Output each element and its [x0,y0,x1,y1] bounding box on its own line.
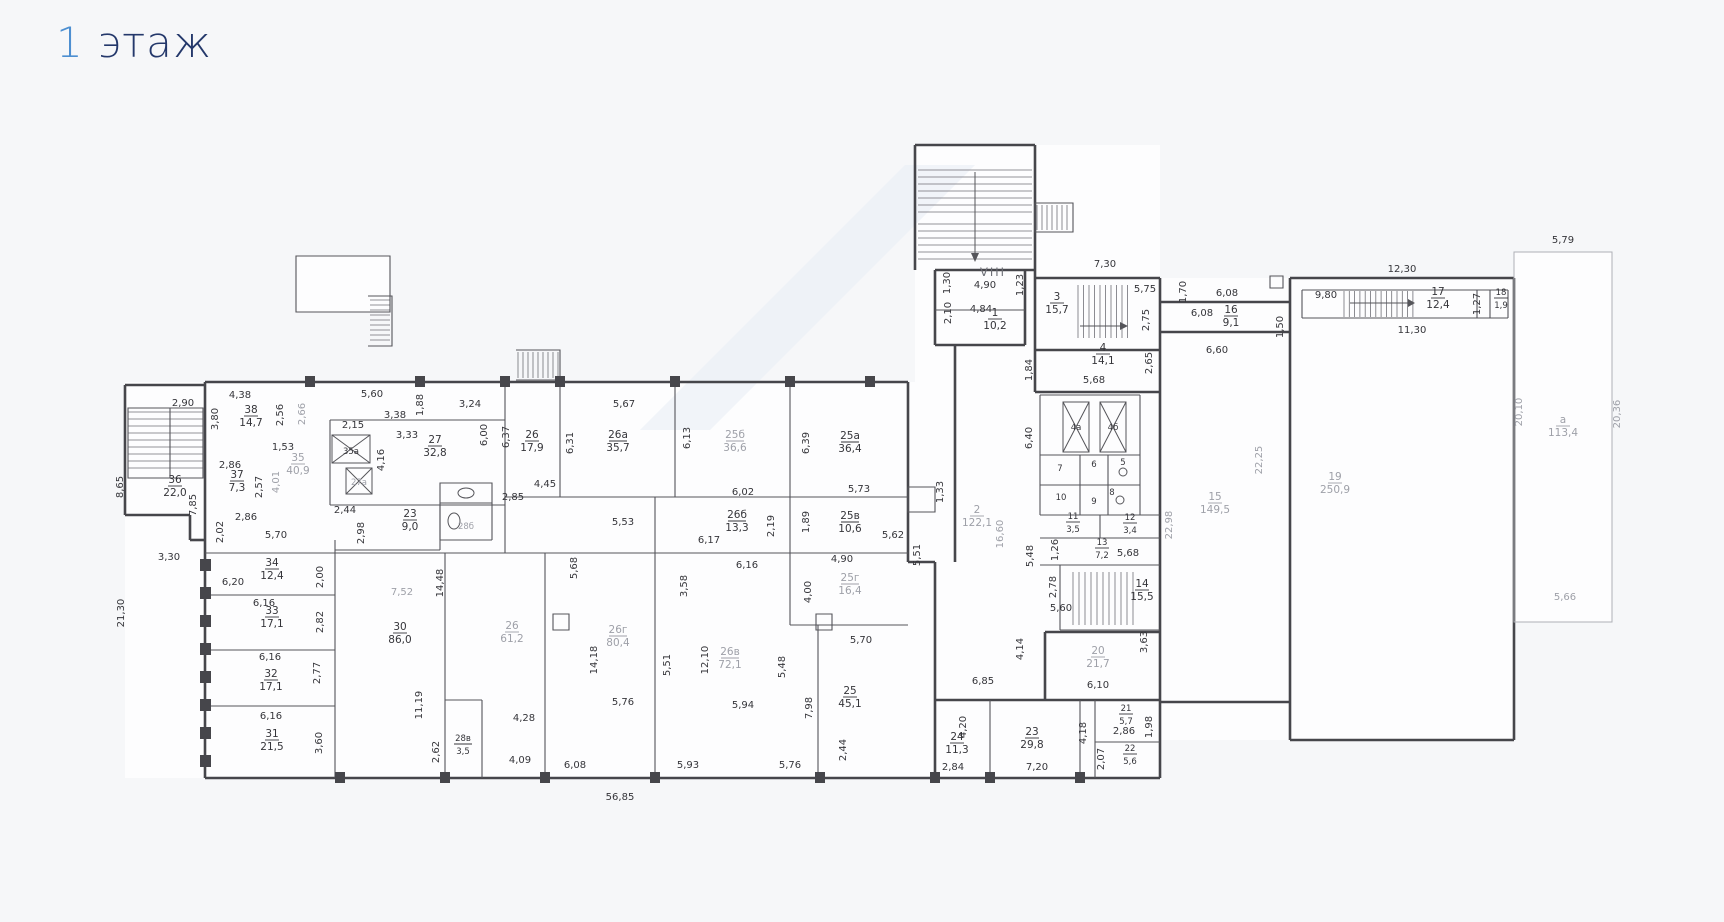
dimension-label: 14,18 [589,646,600,675]
dimension-label: 2,15 [342,420,364,431]
room-number: 18 [1496,288,1507,298]
dimension-label: 6,10 [1087,680,1109,691]
room-label: 25в10,6 [838,510,862,535]
dimension-label: 22,25 [1254,446,1265,475]
room-number: 16 [1224,304,1238,316]
room-number: 17 [1431,286,1444,298]
room-area: 113,4 [1548,427,1578,439]
dimension-label: 2,02 [215,521,226,543]
room-number: 37 [230,469,243,481]
dimension-label: 5,66 [1554,592,1576,603]
room-label: 26б13,3 [725,509,748,534]
dimension-label: 4,18 [1078,722,1089,744]
room-label: 4б [1108,423,1119,433]
dimension-label: 12,10 [700,646,711,675]
dimension-label: 12,30 [1388,264,1417,275]
dimension-label: 1,98 [1144,716,1155,738]
dimension-label: 5,79 [1552,235,1574,246]
dimension-label: 5,51 [912,544,923,566]
room-area: 5,7 [1119,717,1133,727]
room-label: 25б36,6 [723,429,747,454]
dimension-label: 5,68 [569,557,580,579]
dimension-label: 8,65 [115,476,126,498]
room-area: 21,5 [260,741,283,753]
dimension-label: 1,50 [1275,316,1286,338]
dimension-label: 6,08 [1191,308,1213,319]
dimension-label: 5,93 [677,760,699,771]
room-area: 250,9 [1320,484,1350,496]
dimension-label: VIII [980,265,1006,279]
dimension-label: 2,84 [942,762,964,773]
dimension-label: 6,13 [682,427,693,449]
dimension-label: 2,77 [312,662,323,684]
room-label: 4а [1071,423,1082,433]
dimension-label: 5,75 [1134,284,1156,295]
room-number: 4б [1108,423,1119,433]
dimension-label: 1,88 [415,394,426,416]
dimension-label: 6,16 [260,711,282,722]
dimension-label: 5,62 [882,530,904,541]
dimension-label: 3,58 [679,575,690,597]
dimension-label: 11,19 [414,691,425,720]
room-number: 21 [1121,704,1132,714]
dimension-label: 1,84 [1024,359,1035,381]
room-label: 377,3 [229,469,246,494]
dimension-label: 7,52 [391,587,413,598]
dimension-label: 2,07 [1096,748,1107,770]
room-area: 45,1 [838,698,861,710]
room-area: 32,8 [423,447,446,459]
room-number: 38 [244,404,257,416]
room-number: 31 [265,728,278,740]
dimension-label: 5,68 [1083,375,1105,386]
room-number: 9 [1091,497,1096,507]
room-number: 14 [1135,578,1149,590]
room-label: 26а35,7 [606,429,629,454]
room-area: 12,4 [1426,299,1450,311]
dimension-label: 6,39 [801,432,812,454]
room-number: 11 [1068,512,1079,522]
room-number: 25г [841,572,860,584]
dimension-label: 2,57 [254,476,265,498]
dimension-label: 6,08 [564,760,586,771]
room-label: 35а [343,447,359,457]
room-number: 3 [1054,291,1061,303]
dimension-label: 4,14 [1015,638,1026,660]
room-area: 15,7 [1045,304,1068,316]
room-label: 7 [1057,464,1062,474]
dimension-label: 6,16 [736,560,758,571]
room-number: 28б [458,522,474,532]
room-number: 10 [1056,493,1067,503]
room-area: 36,6 [723,442,747,454]
room-label: 5 [1120,458,1125,468]
room-label: 8 [1109,488,1114,498]
dimension-label: 1,89 [801,511,812,533]
room-label: 26в72,1 [718,646,741,671]
room-number: 12 [1125,513,1136,523]
dimension-label: 3,33 [396,430,418,441]
room-label: 28б [458,522,474,532]
dimension-label: 5,60 [361,389,383,400]
room-number: 2 [974,504,981,516]
room-number: 24 [950,731,964,743]
dimension-label: 4,16 [376,449,387,471]
room-area: 10,6 [838,523,862,535]
dimension-label: 6,00 [479,424,490,446]
dimension-label: 2,86 [1113,726,1135,737]
dimension-label: 6,40 [1024,427,1035,449]
dimension-label: 4,01 [271,471,282,493]
dimension-label: 2,62 [431,741,442,763]
room-number: 26а [608,429,628,441]
room-area: 11,3 [945,744,968,756]
dimension-label: 4,09 [509,755,531,766]
dimension-label: 11,30 [1398,325,1427,336]
room-number: 30 [393,621,406,633]
room-number: 33 [265,605,278,617]
room-area: 29,8 [1020,739,1043,751]
dimension-label: 3,38 [384,410,406,421]
dimension-label: 2,86 [235,512,257,523]
dimension-label: 14,48 [435,569,446,598]
page: 1 этаж 2,904,383,802,562,665,603,381,883… [0,0,1724,922]
dimension-label: 4,00 [803,581,814,603]
dimension-label: 2,82 [315,611,326,633]
dimension-label: 2,66 [297,403,308,425]
dimension-label: 2,44 [334,505,356,516]
dimension-label: 2,44 [838,739,849,761]
dimension-label: 2,00 [315,566,326,588]
dimension-label: 4,90 [974,280,996,291]
dimension-label: 7,98 [804,697,815,719]
room-number: 19 [1328,471,1341,483]
room-number: 26б [727,509,747,521]
room-area: 86,0 [388,634,411,646]
dimension-label: 56,85 [606,792,635,803]
room-area: 17,9 [520,442,543,454]
dimension-label: 6,02 [732,487,754,498]
room-number: 32 [264,668,277,680]
room-number: 4а [1071,423,1082,433]
room-number: 26г [609,624,628,636]
dimension-label: 4,28 [513,713,535,724]
dimension-label: 5,76 [612,697,634,708]
dimension-label: 5,48 [777,656,788,678]
dimension-label: 2,10 [943,302,954,324]
room-area: 9,0 [402,521,419,533]
dimension-label: 3,63 [1139,631,1150,653]
room-number: 5 [1120,458,1125,468]
room-number: 27 [428,434,441,446]
dimension-label: 20,36 [1612,400,1623,429]
room-number: 25 [843,685,856,697]
room-area: 36,4 [838,443,862,455]
room-area: 72,1 [718,659,741,671]
room-label: 25а36,4 [838,430,862,455]
dimension-label: 4,84 [970,304,992,315]
room-number: 26в [720,646,740,658]
room-area: 14,7 [239,417,262,429]
dimension-label: 3,24 [459,399,481,410]
dimension-label: 6,37 [501,426,512,448]
room-number: 26 [505,620,519,632]
room-number: 23 [403,508,416,520]
dimension-label: 16,60 [995,520,1006,549]
room-label: 25г16,4 [838,572,862,597]
room-label: 10 [1056,493,1067,503]
room-label: 9 [1091,497,1096,507]
dimension-label: 4,90 [831,554,853,565]
room-area: 15,5 [1130,591,1153,603]
room-label: 239,0 [402,508,419,533]
dimension-label: 2,56 [275,404,286,426]
dimension-label: 4,38 [229,390,251,401]
room-number: 7 [1057,464,1062,474]
dimension-label: 1,26 [1050,539,1061,561]
room-number: 13 [1097,538,1108,548]
dimension-label: 3,60 [314,732,325,754]
room-area: 22,0 [163,487,186,499]
dimension-label: 1,23 [1015,274,1026,296]
room-area: 5,6 [1123,757,1137,767]
room-area: 3,5 [456,747,470,757]
room-label: 169,1 [1223,304,1240,329]
room-number: 25а [840,430,860,442]
room-number: а [1560,414,1566,426]
room-area: 1,9 [1494,301,1508,311]
dimension-label: 21,30 [116,599,127,628]
room-area: 80,4 [606,637,630,649]
room-area: 149,5 [1200,504,1230,516]
room-number: 23 [1025,726,1038,738]
dimension-label: 5,53 [612,517,634,528]
room-area: 17,1 [259,681,282,693]
room-number: 4 [1100,342,1107,354]
room-number: 22 [1125,744,1136,754]
dimension-label: 3,80 [210,408,221,430]
room-area: 7,3 [229,482,246,494]
room-number: 36 [168,474,182,486]
dimension-label: 7,30 [1094,259,1116,270]
room-area: 13,3 [725,522,748,534]
dimension-label: 3,30 [158,552,180,563]
room-area: 21,7 [1086,658,1109,670]
room-number: 28в [455,734,471,744]
dimension-label: 20,10 [1514,398,1525,427]
dimension-label: 1,70 [1178,281,1189,303]
dimension-label: 6,17 [698,535,720,546]
dimension-label: 5,70 [265,530,287,541]
dimension-label: 7,20 [1026,762,1048,773]
room-number: 6 [1091,460,1096,470]
room-number: 26 [525,429,539,441]
room-number: 8 [1109,488,1114,498]
dimension-label: 5,48 [1025,545,1036,567]
room-area: 7,2 [1095,551,1109,561]
room-number: 25б [725,429,745,441]
dimension-label: 5,60 [1050,603,1072,614]
dimension-label: 2,65 [1144,352,1155,374]
dimension-label: 5,67 [613,399,635,410]
room-number: 1 [992,307,999,319]
room-label: 27а [351,478,367,488]
dimension-label: 6,85 [972,676,994,687]
dimension-label: 2,19 [766,515,777,537]
dimension-label: 5,51 [662,654,673,676]
room-number: 15 [1208,491,1221,503]
dimension-label: 6,60 [1206,345,1228,356]
room-number: 34 [265,557,279,569]
room-number: 27а [351,478,367,488]
dimension-label: 5,94 [732,700,754,711]
room-number: 35 [291,452,304,464]
room-area: 14,1 [1091,355,1114,367]
room-area: 17,1 [260,618,283,630]
dimension-label: 2,90 [172,398,194,409]
dimension-label: 6,31 [565,432,576,454]
room-area: 16,4 [838,585,862,597]
dimension-label: 1,27 [1472,293,1483,315]
dimension-label: 5,76 [779,760,801,771]
floor-plan: 2,904,383,802,562,665,603,381,883,242,15… [0,0,1724,922]
dimension-label: 22,98 [1164,511,1175,540]
dimension-label: 6,20 [222,577,244,588]
dimension-label: 9,80 [1315,290,1337,301]
room-area: 61,2 [500,633,523,645]
dimension-label: 5,73 [848,484,870,495]
dimension-label: 6,16 [259,652,281,663]
room-number: 35а [343,447,359,457]
room-label: 26г80,4 [606,624,630,649]
room-area: 9,1 [1223,317,1240,329]
room-area: 3,4 [1123,526,1137,536]
dimension-label: 5,70 [850,635,872,646]
room-area: 35,7 [606,442,629,454]
dimension-label: 2,98 [356,522,367,544]
dimension-label: 1,33 [935,481,946,503]
dimension-label: 4,45 [534,479,556,490]
dimension-label: 7,85 [188,494,199,516]
room-area: 12,4 [260,570,284,582]
room-area: 40,9 [286,465,309,477]
dimension-label: 6,08 [1216,288,1238,299]
room-number: 20 [1091,645,1104,657]
room-label: 6 [1091,460,1096,470]
dimension-label: 5,68 [1117,548,1139,559]
dimension-label: 2,75 [1141,309,1152,331]
room-area: 10,2 [983,320,1006,332]
dimension-label: 1,30 [942,272,953,294]
dimension-label: 2,85 [502,492,524,503]
room-number: 25в [840,510,860,522]
room-area: 122,1 [962,517,992,529]
room-area: 3,5 [1066,525,1080,535]
dimension-label: 2,78 [1048,576,1059,598]
